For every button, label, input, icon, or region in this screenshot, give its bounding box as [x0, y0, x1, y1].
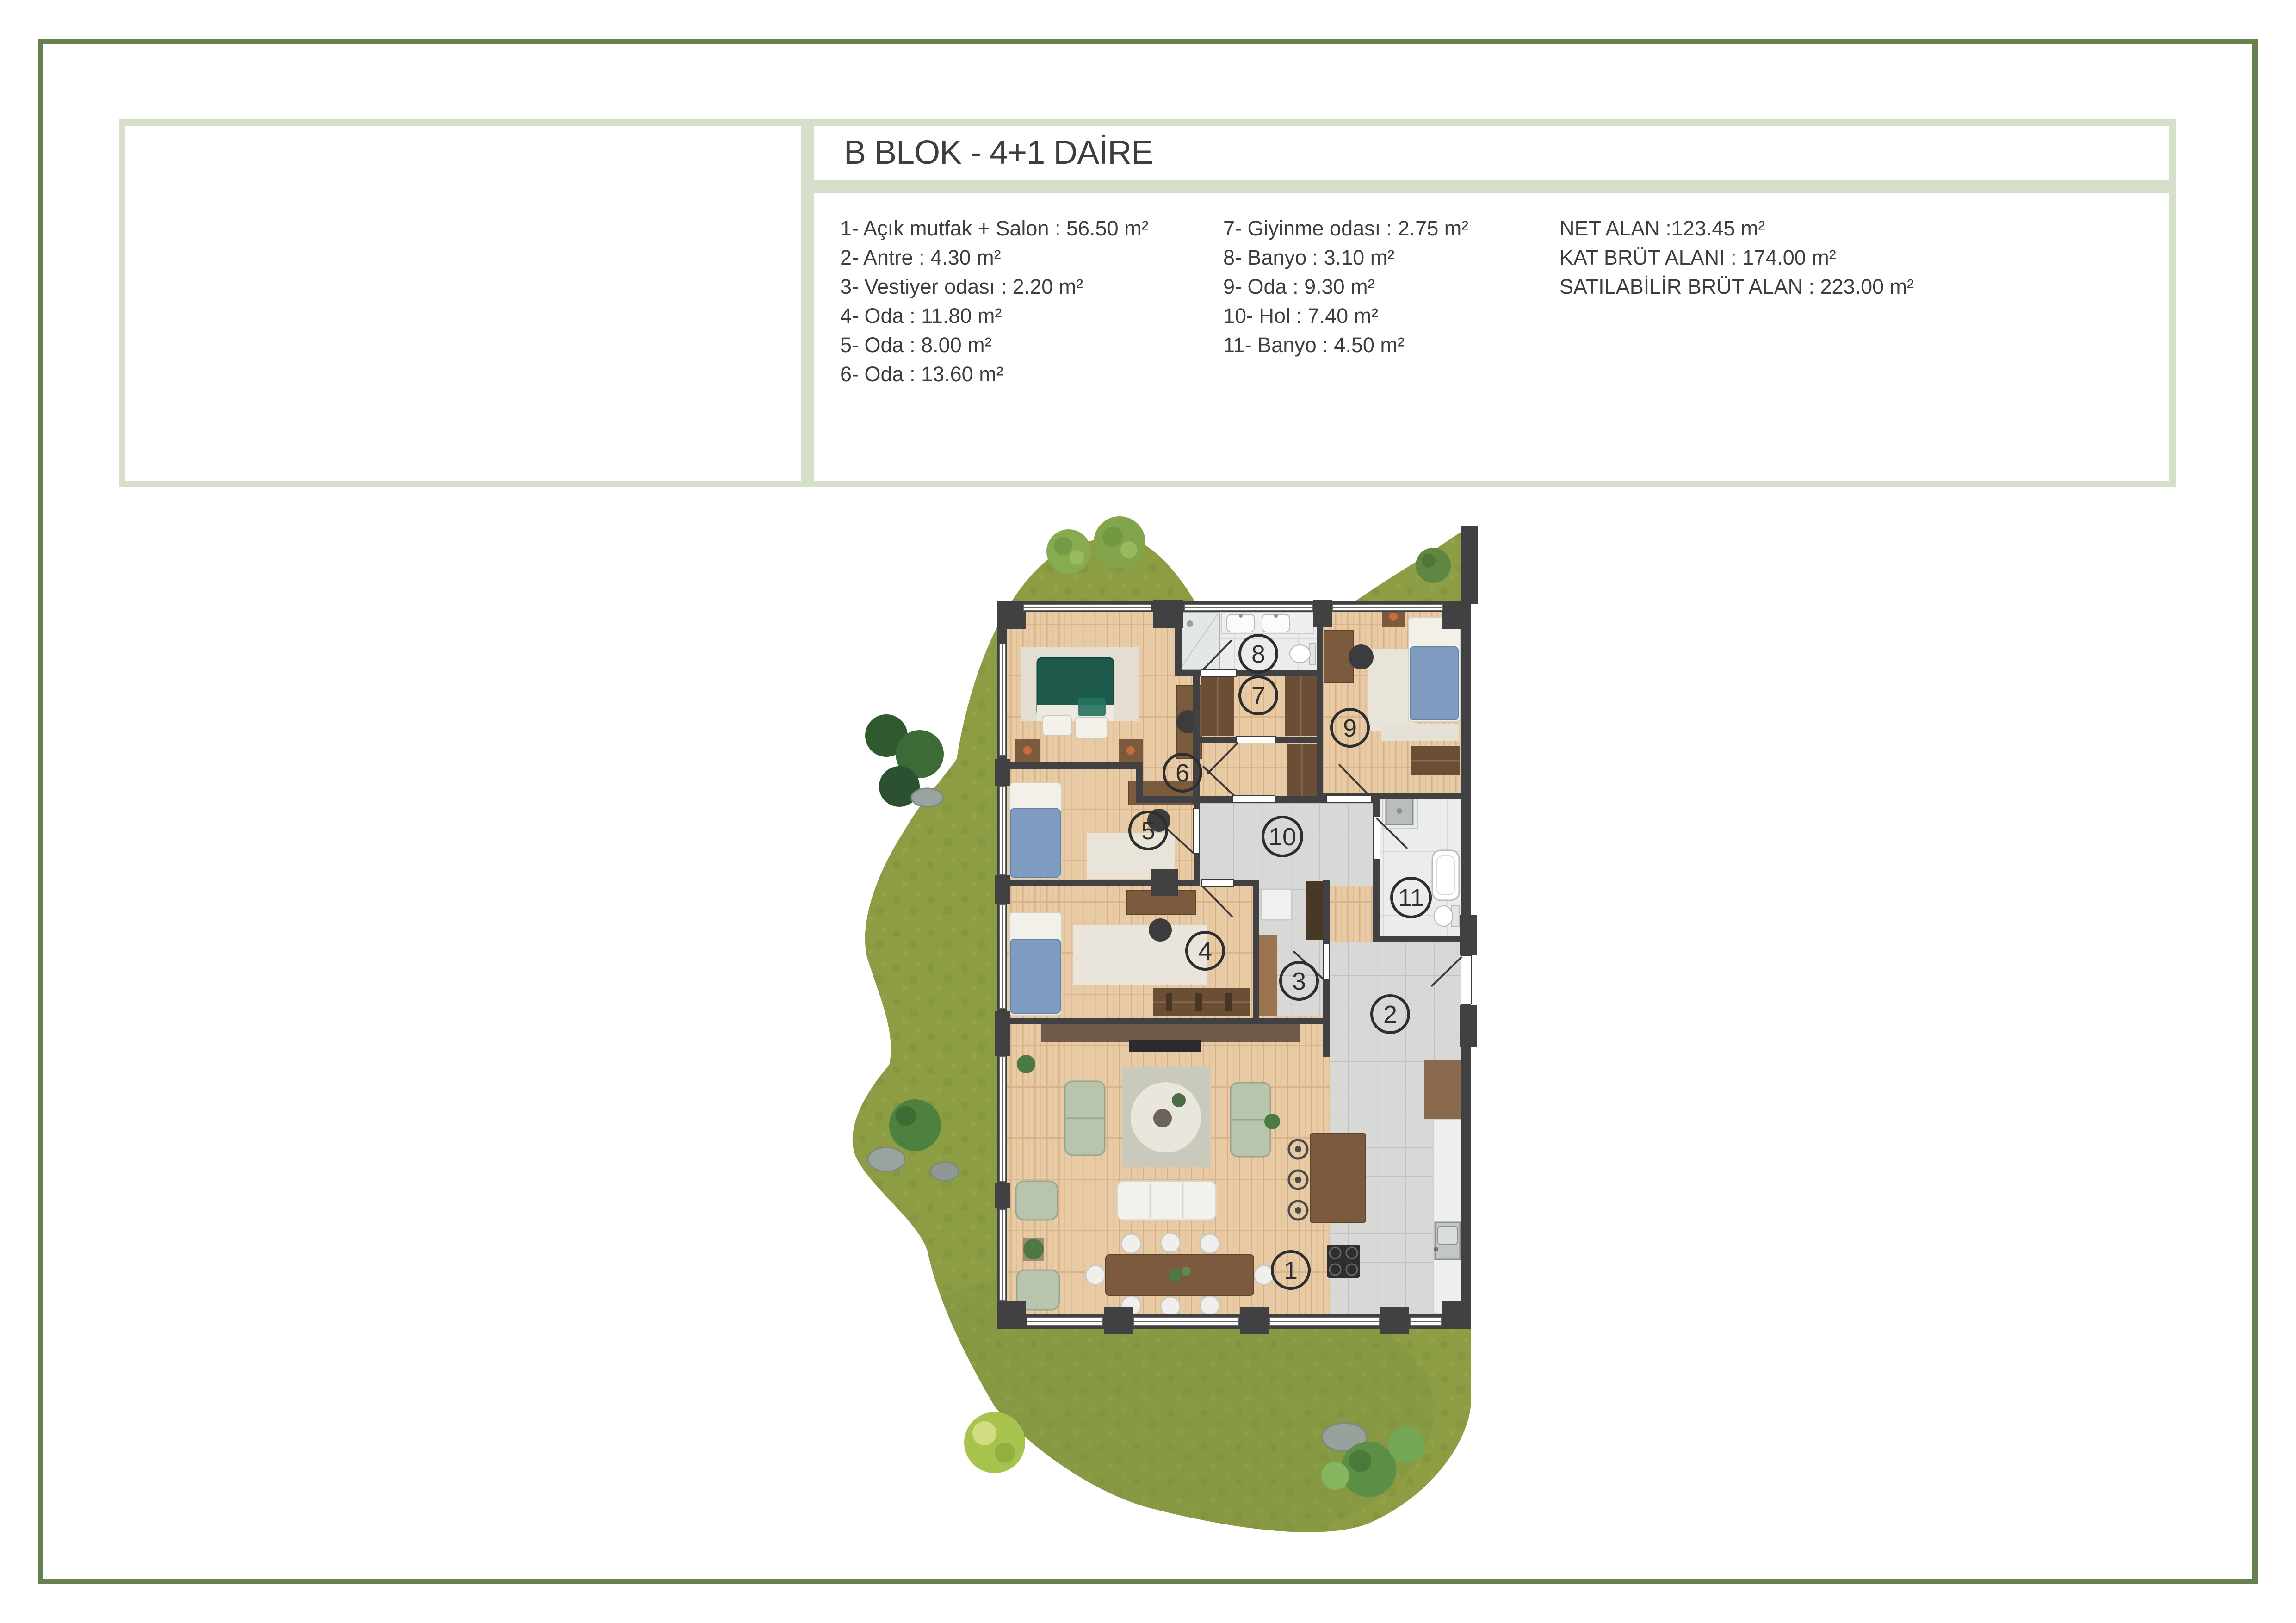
window-left-2	[999, 787, 1006, 874]
window-left-4	[999, 1057, 1006, 1182]
svg-text:9: 9	[1343, 714, 1357, 742]
vestiyer-wood-strip	[1259, 935, 1277, 1016]
palm-cluster-left	[865, 714, 944, 807]
cooktop	[1327, 1245, 1360, 1278]
kitchen-sink	[1434, 1222, 1460, 1259]
window-bottom-2	[1133, 1318, 1239, 1325]
window-bottom-3	[1269, 1318, 1380, 1325]
floor-plan-svg: 1 2 3 4 5 6 7 8 9 10 11	[0, 0, 2296, 1623]
plant	[1017, 1055, 1035, 1073]
plant	[1264, 1114, 1280, 1129]
tree-top-2	[1094, 516, 1145, 568]
svg-text:5: 5	[1141, 817, 1155, 845]
plant-pot	[1023, 1238, 1044, 1261]
window-left-5	[999, 1209, 1006, 1300]
window-left-1	[999, 644, 1006, 755]
white-cabinet	[1261, 889, 1292, 920]
room-label-10: 10	[1263, 817, 1302, 856]
svg-text:6: 6	[1176, 759, 1189, 787]
svg-text:10: 10	[1269, 823, 1296, 851]
toilet	[1290, 643, 1316, 664]
svg-text:1: 1	[1284, 1257, 1298, 1284]
tree-top-1	[1046, 529, 1091, 574]
svg-text:3: 3	[1292, 967, 1306, 995]
bush-top-right	[1416, 548, 1451, 583]
bathtub	[1432, 850, 1459, 900]
floor-plan-page: B BLOK - 4+1 DAİRE 1- Açık mutfak + Salo…	[0, 0, 2296, 1623]
sofa-white	[1117, 1181, 1216, 1220]
window-top-1	[1023, 604, 1151, 611]
window-top-2	[1184, 604, 1313, 611]
entry-cabinet	[1424, 1060, 1462, 1119]
dresser	[1411, 746, 1460, 775]
svg-text:2: 2	[1383, 1001, 1397, 1028]
svg-text:4: 4	[1198, 937, 1212, 965]
tv-console	[1041, 1024, 1300, 1042]
dark-cabinet	[1306, 881, 1323, 940]
svg-text:11: 11	[1398, 884, 1424, 912]
wardrobe	[1153, 988, 1250, 1016]
desk-chair	[1149, 918, 1172, 942]
chimney	[1461, 526, 1478, 604]
kitchen-island	[1310, 1134, 1366, 1222]
bush-bottom-left	[964, 1412, 1025, 1473]
kitchen-counter	[1433, 1120, 1462, 1313]
building: 1 2 3 4 5 6 7 8 9 10 11	[995, 600, 1477, 1334]
svg-text:8: 8	[1251, 640, 1265, 668]
svg-text:7: 7	[1251, 682, 1265, 710]
window-bottom-1	[1027, 1318, 1103, 1325]
salon-rug	[1122, 1067, 1211, 1167]
desk-chair	[1349, 644, 1374, 669]
window-left-3	[999, 905, 1006, 1009]
tv	[1129, 1040, 1201, 1052]
window-bottom-4	[1410, 1318, 1442, 1325]
armchair	[1016, 1181, 1058, 1220]
toilet	[1434, 906, 1459, 926]
window-top-3	[1332, 604, 1442, 611]
